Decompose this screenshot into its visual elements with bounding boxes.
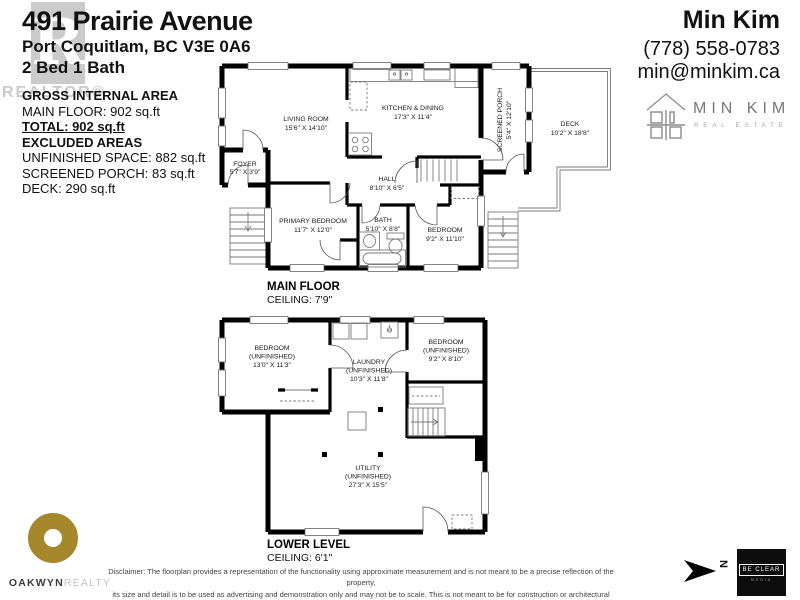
kitchen-pantry-counter	[350, 82, 367, 110]
bath-fixtures	[360, 232, 406, 267]
room-label-porch: SCREENED PORCH	[497, 88, 504, 152]
room-dims-hall: 8'10" X 6'5"	[370, 185, 405, 192]
lower-level-ceiling: CEILING: 6'1"	[267, 552, 333, 564]
kitchen-counter	[350, 69, 478, 88]
area-excluded-title: EXCLUDED AREAS	[22, 135, 205, 151]
interior-stairs	[421, 160, 457, 182]
porch-walls	[481, 66, 529, 172]
area-summary: GROSS INTERNAL AREA MAIN FLOOR: 902 sq.f…	[22, 88, 205, 197]
room-dims-porch: 5'4" X 12'10"	[506, 100, 513, 139]
property-city: Port Coquitlam, BC V3E 0A6	[22, 37, 251, 57]
house-lattice-icon	[643, 88, 689, 142]
area-deck: DECK: 290 sq.ft	[22, 181, 205, 197]
room-label-bedroom-right: BEDROOM	[428, 339, 463, 346]
post	[378, 407, 383, 412]
room-label-deck: DECK	[561, 121, 580, 128]
area-total: TOTAL: 902 sq.ft	[22, 119, 205, 135]
lower-level-plan: BEDROOM (UNFINISHED) 13'0" X 11'3" LAUND…	[219, 317, 489, 565]
room-dims-bedroom-left: 13'0" X 11'3"	[253, 362, 291, 369]
brand-name: MIN KIM	[693, 100, 790, 118]
room-label-utility: UTILITY	[355, 465, 381, 472]
main-floor-ceiling: CEILING: 7'9"	[267, 294, 333, 306]
lower-level-title: LOWER LEVEL	[267, 539, 350, 551]
room-dims-living: 15'6" X 14'10"	[285, 125, 328, 132]
room-label-living: LIVING ROOM	[283, 116, 329, 123]
agent-name: Min Kim	[683, 6, 780, 35]
room-sub-bedroom-left: (UNFINISHED)	[249, 354, 295, 361]
room-dims-bedroom: 9'2" X 11'10"	[426, 236, 464, 243]
stove-icon	[349, 133, 372, 155]
room-sub-utility: (UNFINISHED)	[345, 474, 391, 481]
floorplan-page: R REALTOR® 491 Prairie Avenue Port Coqui…	[0, 0, 800, 600]
room-dims-utility: 27'3" X 15'5"	[349, 482, 388, 489]
post	[322, 452, 327, 457]
main-floor-title: MAIN FLOOR	[267, 281, 341, 293]
room-label-bedroom-left: BEDROOM	[254, 345, 289, 352]
brand-subtitle: REAL ESTATE	[694, 122, 787, 129]
room-label-primary: PRIMARY BEDROOM	[279, 218, 347, 225]
hall-closet	[451, 187, 479, 199]
room-dims-primary: 11'7" X 12'0"	[294, 227, 332, 234]
property-beds-baths: 2 Bed 1 Bath	[22, 58, 125, 78]
agent-email: min@minkim.ca	[637, 61, 780, 84]
area-title: GROSS INTERNAL AREA	[22, 88, 205, 104]
room-label-bedroom: BEDROOM	[427, 227, 462, 234]
room-sub-laundry: (UNFINISHED)	[346, 368, 392, 375]
wall-notch	[475, 437, 485, 461]
room-sub-bedroom-right: (UNFINISHED)	[423, 348, 469, 355]
main-floor-plan: LIVING ROOM 15'6" X 14'10" KITCHEN & DIN…	[219, 63, 611, 307]
deck-stairs	[488, 212, 518, 268]
room-dims-bath: 5'10" X 8'8"	[366, 226, 401, 233]
exterior-door	[423, 507, 448, 536]
room-label-bath: BATH	[374, 217, 392, 224]
room-dims-bedroom-right: 9'2" X 8'10"	[429, 356, 464, 363]
agent-phone: (778) 558-0783	[643, 38, 780, 61]
basement-stairs	[408, 408, 445, 436]
room-dims-kitchen: 17'3" X 11'4"	[394, 114, 432, 121]
property-address: 491 Prairie Avenue	[22, 6, 253, 37]
area-unfinished: UNFINISHED SPACE: 882 sq.ft	[22, 150, 205, 166]
laundry-appliances	[333, 322, 398, 339]
minkim-brand-logo: MIN KIM REAL ESTATE	[643, 88, 793, 144]
post	[378, 452, 383, 457]
water-tank	[452, 515, 472, 529]
room-dims-deck: 10'2" X 18'8"	[551, 130, 590, 137]
room-label-kitchen: KITCHEN & DINING	[382, 105, 444, 112]
room-label-foyer: FOYER	[233, 161, 257, 168]
front-stairs	[230, 208, 266, 264]
area-screened-porch: SCREENED PORCH: 83 sq.ft	[22, 166, 205, 182]
room-dims-laundry: 10'3" X 11'8"	[350, 376, 388, 383]
area-main-floor: MAIN FLOOR: 902 sq.ft	[22, 104, 205, 120]
furnace-box	[348, 412, 366, 430]
room-label-hall: HALL	[378, 176, 395, 183]
room-label-laundry: LAUNDRY	[353, 359, 386, 366]
room-dims-foyer: 5'7" X 3'9"	[230, 169, 261, 176]
closets	[280, 387, 443, 404]
